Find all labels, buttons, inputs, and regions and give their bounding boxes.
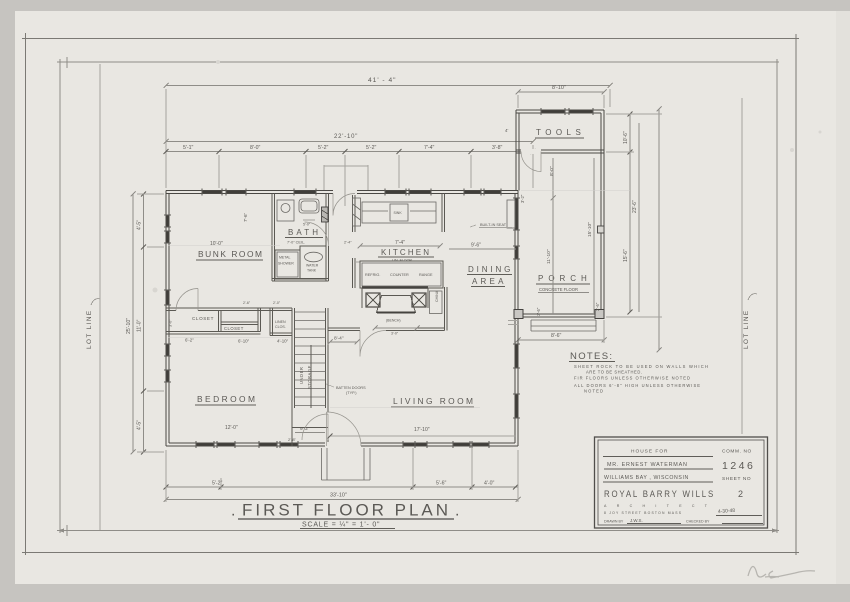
svg-text:6'-10": 6'-10" bbox=[238, 339, 250, 344]
svg-text:REFRIG.: REFRIG. bbox=[365, 273, 380, 277]
svg-text:STORAGE: STORAGE bbox=[307, 365, 312, 389]
svg-text:2'-4": 2'-4" bbox=[344, 241, 352, 245]
svg-text:NOTED: NOTED bbox=[584, 389, 603, 394]
svg-text:10'-6": 10'-6" bbox=[623, 131, 629, 144]
svg-text:22'-10": 22'-10" bbox=[334, 134, 358, 140]
svg-text:11'-10": 11'-10" bbox=[546, 249, 552, 264]
svg-text:8'-0": 8'-0" bbox=[250, 145, 260, 151]
svg-text:COUNTER: COUNTER bbox=[390, 273, 409, 277]
svg-text:33'-10": 33'-10" bbox=[330, 493, 347, 499]
svg-text:NOTES:: NOTES: bbox=[570, 351, 612, 362]
svg-text:HOUSE FOR: HOUSE FOR bbox=[631, 449, 669, 455]
svg-text:5'-2": 5'-2" bbox=[366, 145, 376, 151]
svg-text:LINEN: LINEN bbox=[275, 320, 286, 324]
svg-text:3'-0": 3'-0" bbox=[169, 319, 173, 327]
svg-text:CONCRETE FLOOR: CONCRETE FLOOR bbox=[539, 287, 578, 292]
svg-text:4'-10": 4'-10" bbox=[277, 339, 289, 344]
svg-text:8'-10": 8'-10" bbox=[552, 85, 566, 91]
svg-text:11'-0": 11'-0" bbox=[137, 319, 143, 332]
svg-text:7'-4": 7'-4" bbox=[424, 145, 434, 151]
svg-text:4-30-48: 4-30-48 bbox=[718, 508, 736, 515]
svg-text:(BENCH): (BENCH) bbox=[386, 319, 401, 323]
svg-text:5'-1": 5'-1" bbox=[183, 145, 193, 151]
svg-text:BATTEN DOORS: BATTEN DOORS bbox=[336, 386, 366, 390]
svg-text:WILLIAMS BAY , WISCONSIN: WILLIAMS BAY , WISCONSIN bbox=[604, 475, 689, 481]
svg-text:LOT LINE: LOT LINE bbox=[743, 310, 750, 350]
svg-text:CHINA: CHINA bbox=[435, 290, 439, 302]
svg-text:SINK: SINK bbox=[394, 211, 403, 215]
svg-text:4'-5": 4'-5" bbox=[137, 420, 143, 430]
svg-text:3'-8": 3'-8" bbox=[492, 145, 502, 151]
svg-text:1246: 1246 bbox=[722, 460, 755, 472]
svg-text:7'-4": 7'-4" bbox=[395, 240, 405, 246]
svg-text:8'-4": 8'-4" bbox=[334, 336, 344, 342]
svg-text:TANK: TANK bbox=[307, 269, 317, 273]
svg-text:5'-0": 5'-0" bbox=[303, 223, 311, 227]
svg-text:SHOWER: SHOWER bbox=[278, 262, 294, 266]
svg-text:12'-0": 12'-0" bbox=[225, 425, 238, 431]
svg-text:SCALE = ¼" = 1'- 0": SCALE = ¼" = 1'- 0" bbox=[302, 522, 380, 529]
svg-text:8'-6": 8'-6" bbox=[551, 333, 561, 339]
svg-text:WATER: WATER bbox=[306, 264, 319, 268]
svg-text:25'-10": 25'-10" bbox=[126, 318, 132, 334]
svg-text:2'-6": 2'-6" bbox=[595, 302, 600, 311]
svg-text:6'-2": 6'-2" bbox=[185, 338, 194, 343]
svg-text:RANGE: RANGE bbox=[419, 273, 433, 277]
svg-text:J.W.S.: J.W.S. bbox=[630, 518, 643, 523]
svg-text:LIN. FLOOR: LIN. FLOOR bbox=[392, 259, 412, 263]
svg-text:3'-0": 3'-0" bbox=[391, 332, 399, 336]
svg-text:23'-6": 23'-6" bbox=[632, 200, 638, 213]
svg-text:17'-10": 17'-10" bbox=[414, 427, 430, 433]
svg-text:CLOSET: CLOSET bbox=[224, 326, 244, 331]
svg-text:5'-6": 5'-6" bbox=[436, 481, 446, 487]
svg-text:LOT LINE: LOT LINE bbox=[86, 310, 93, 350]
svg-text:4'-5": 4'-5" bbox=[137, 220, 143, 230]
svg-text:41' - 4": 41' - 4" bbox=[368, 77, 396, 84]
svg-text:DINING: DINING bbox=[468, 265, 512, 274]
svg-text:2'-0": 2'-0" bbox=[273, 301, 281, 305]
svg-text:10'-0": 10'-0" bbox=[210, 241, 223, 247]
svg-text:2'-6": 2'-6" bbox=[243, 301, 251, 305]
svg-text:9'-2": 9'-2" bbox=[300, 426, 310, 432]
svg-text:CLOS.: CLOS. bbox=[275, 325, 286, 329]
svg-text:4': 4' bbox=[505, 128, 508, 133]
svg-text:COMM. NO: COMM. NO bbox=[722, 449, 752, 455]
svg-text:UNDER: UNDER bbox=[299, 367, 304, 384]
svg-text:SHEET NO: SHEET NO bbox=[722, 476, 751, 482]
svg-text:ARCHITECT: ARCHITECT bbox=[604, 504, 712, 508]
svg-text:(TYP.): (TYP.) bbox=[346, 391, 357, 395]
svg-text:FIRST FLOOR PLAN: FIRST FLOOR PLAN bbox=[242, 501, 448, 520]
svg-text:METAL: METAL bbox=[279, 256, 290, 260]
svg-text:3'-6": 3'-6" bbox=[536, 307, 541, 316]
svg-text:.: . bbox=[455, 503, 459, 520]
svg-text:ARE TO BE SHEATHED.: ARE TO BE SHEATHED. bbox=[586, 370, 642, 375]
svg-text:8 JOY STREET BOSTON MASS: 8 JOY STREET BOSTON MASS bbox=[604, 511, 682, 515]
svg-text:DRAWN BY: DRAWN BY bbox=[604, 520, 624, 524]
svg-text:7'-6": 7'-6" bbox=[243, 212, 248, 222]
svg-text:BUILT-IN SEAT: BUILT-IN SEAT bbox=[480, 223, 507, 227]
svg-text:7'-0" CEIL.: 7'-0" CEIL. bbox=[287, 241, 305, 245]
svg-text:15'-6": 15'-6" bbox=[623, 249, 629, 262]
svg-text:5'-2": 5'-2" bbox=[318, 145, 328, 151]
svg-text:4'-0": 4'-0" bbox=[484, 481, 494, 487]
svg-text:ROYAL BARRY WILLS: ROYAL BARRY WILLS bbox=[604, 489, 715, 499]
svg-text:15'-10": 15'-10" bbox=[587, 222, 593, 237]
svg-text:CHECKED BY: CHECKED BY bbox=[686, 520, 710, 524]
svg-text:.: . bbox=[231, 503, 235, 520]
svg-text:9'-6": 9'-6" bbox=[471, 243, 481, 249]
svg-text:3'-2": 3'-2" bbox=[520, 194, 525, 203]
svg-text:CLOSET: CLOSET bbox=[192, 316, 214, 321]
svg-text:2: 2 bbox=[738, 489, 743, 499]
svg-text:MR. ERNEST WATERMAN: MR. ERNEST WATERMAN bbox=[607, 462, 688, 468]
svg-text:FIR FLOORS UNLESS OTHERWISE N: FIR FLOORS UNLESS OTHERWISE NOTED bbox=[574, 376, 690, 381]
svg-text:8'-0": 8'-0" bbox=[549, 166, 555, 176]
